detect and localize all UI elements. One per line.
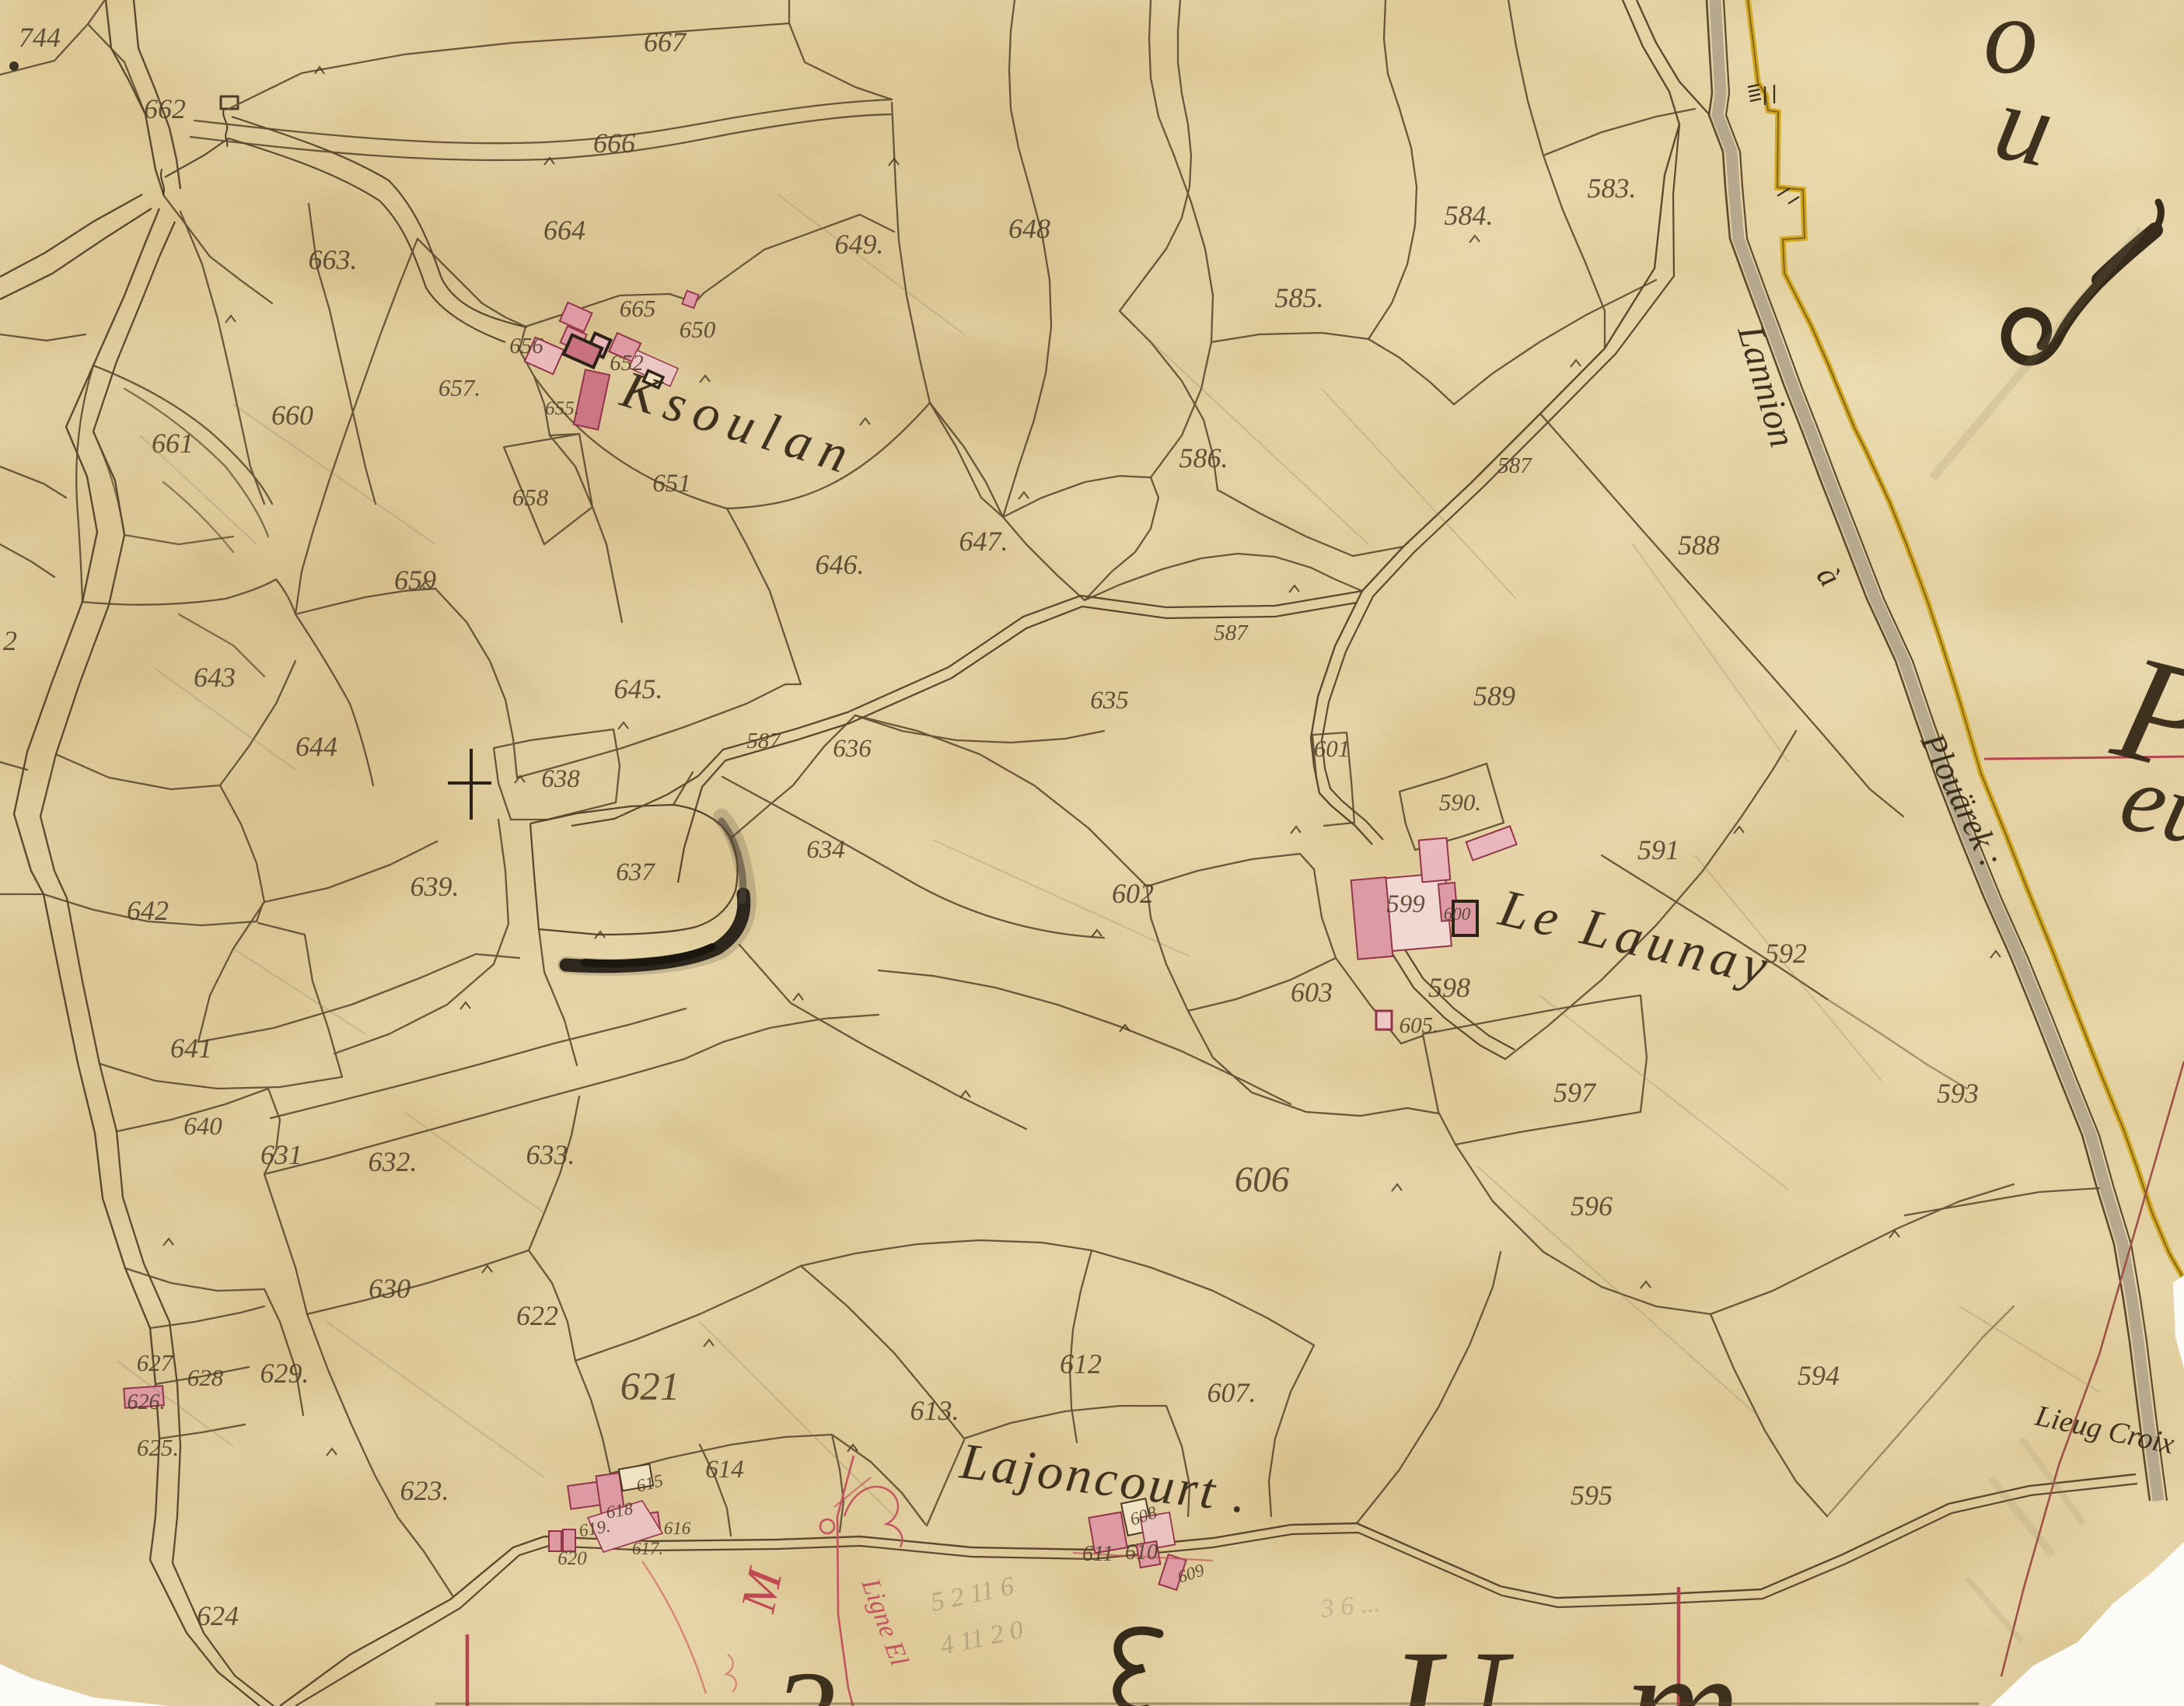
svg-text:661: 661 (152, 428, 194, 459)
svg-text:616: 616 (664, 1519, 691, 1538)
svg-text:627: 627 (137, 1349, 174, 1376)
svg-text:634: 634 (806, 836, 845, 864)
svg-text:667: 667 (644, 26, 687, 58)
svg-text:638: 638 (541, 765, 580, 793)
svg-text:594: 594 (1798, 1360, 1840, 1391)
svg-text:621: 621 (620, 1365, 680, 1409)
svg-text:629.: 629. (260, 1358, 309, 1389)
svg-text:584.: 584. (1445, 200, 1494, 231)
svg-text:626.: 626. (128, 1390, 166, 1414)
svg-text:630: 630 (369, 1273, 411, 1304)
svg-text:655.: 655. (545, 398, 579, 419)
svg-text:646.: 646. (816, 549, 865, 580)
svg-text:591: 591 (1637, 834, 1679, 865)
svg-text:585.: 585. (1275, 282, 1324, 313)
svg-text:583.: 583. (1588, 173, 1637, 204)
svg-text:650: 650 (680, 316, 716, 343)
svg-text:651: 651 (652, 470, 691, 498)
svg-text:600: 600 (1444, 904, 1471, 924)
svg-text:611: 611 (1082, 1542, 1113, 1566)
svg-text:605.: 605. (1400, 1013, 1439, 1038)
svg-text:587: 587 (746, 729, 781, 753)
svg-text:599: 599 (1386, 890, 1425, 918)
svg-text:587: 587 (1214, 621, 1249, 645)
svg-text:613.: 613. (910, 1395, 959, 1426)
svg-text:663.: 663. (309, 244, 358, 275)
svg-text:635: 635 (1090, 687, 1129, 715)
svg-text:657.: 657. (439, 374, 480, 401)
svg-text:659: 659 (394, 565, 436, 596)
svg-text:633.: 633. (526, 1139, 575, 1170)
svg-text:660: 660 (271, 400, 313, 431)
svg-text:666: 666 (593, 128, 635, 159)
svg-text:623.: 623. (400, 1475, 449, 1506)
svg-text:607.: 607. (1207, 1377, 1256, 1408)
svg-text:603: 603 (1291, 977, 1333, 1008)
svg-text:606: 606 (1235, 1159, 1290, 1200)
svg-text:593: 593 (1937, 1078, 1979, 1109)
svg-text:624: 624 (197, 1600, 239, 1631)
svg-text:588: 588 (1678, 530, 1720, 561)
svg-text:610: 610 (1125, 1540, 1158, 1564)
svg-text:744: 744 (19, 22, 61, 53)
svg-text:620: 620 (557, 1548, 587, 1569)
svg-text:614: 614 (705, 1456, 744, 1484)
svg-text:632.: 632. (369, 1146, 418, 1177)
svg-text:617.: 617. (632, 1539, 663, 1558)
svg-text:628: 628 (187, 1364, 224, 1391)
svg-text:648: 648 (1008, 213, 1050, 244)
svg-text:665: 665 (620, 295, 656, 322)
svg-text:601: 601 (1314, 735, 1351, 762)
svg-text:586.: 586. (1179, 442, 1228, 474)
svg-text:645.: 645. (614, 673, 663, 704)
svg-text:596: 596 (1571, 1190, 1613, 1222)
svg-text:640: 640 (183, 1113, 222, 1141)
svg-text:641: 641 (170, 1033, 212, 1064)
svg-text:656: 656 (509, 334, 543, 358)
svg-text:637: 637 (616, 858, 655, 886)
svg-text:636: 636 (833, 735, 872, 763)
svg-text:664: 664 (543, 215, 585, 246)
svg-text:658: 658 (512, 484, 549, 511)
svg-text:639.: 639. (411, 871, 460, 902)
svg-text:642: 642 (127, 895, 169, 926)
svg-text:662: 662 (144, 93, 186, 124)
svg-text:631: 631 (260, 1139, 302, 1170)
svg-text:589: 589 (1473, 680, 1515, 711)
svg-text:2: 2 (3, 625, 17, 656)
svg-text:598: 598 (1428, 972, 1470, 1003)
svg-text:647.: 647. (959, 526, 1008, 557)
svg-text:3: 3 (773, 1645, 838, 1706)
svg-text:590.: 590. (1439, 788, 1481, 816)
svg-text:612: 612 (1060, 1348, 1102, 1379)
svg-text:597: 597 (1553, 1077, 1597, 1108)
svg-text:595: 595 (1571, 1480, 1613, 1511)
svg-text:587: 587 (1497, 453, 1532, 478)
svg-text:625.: 625. (137, 1434, 179, 1461)
svg-text:644: 644 (295, 731, 337, 762)
svg-text:652: 652 (610, 351, 644, 376)
svg-text:643: 643 (194, 662, 236, 693)
svg-text:602: 602 (1112, 878, 1154, 909)
svg-text:622: 622 (516, 1300, 558, 1331)
